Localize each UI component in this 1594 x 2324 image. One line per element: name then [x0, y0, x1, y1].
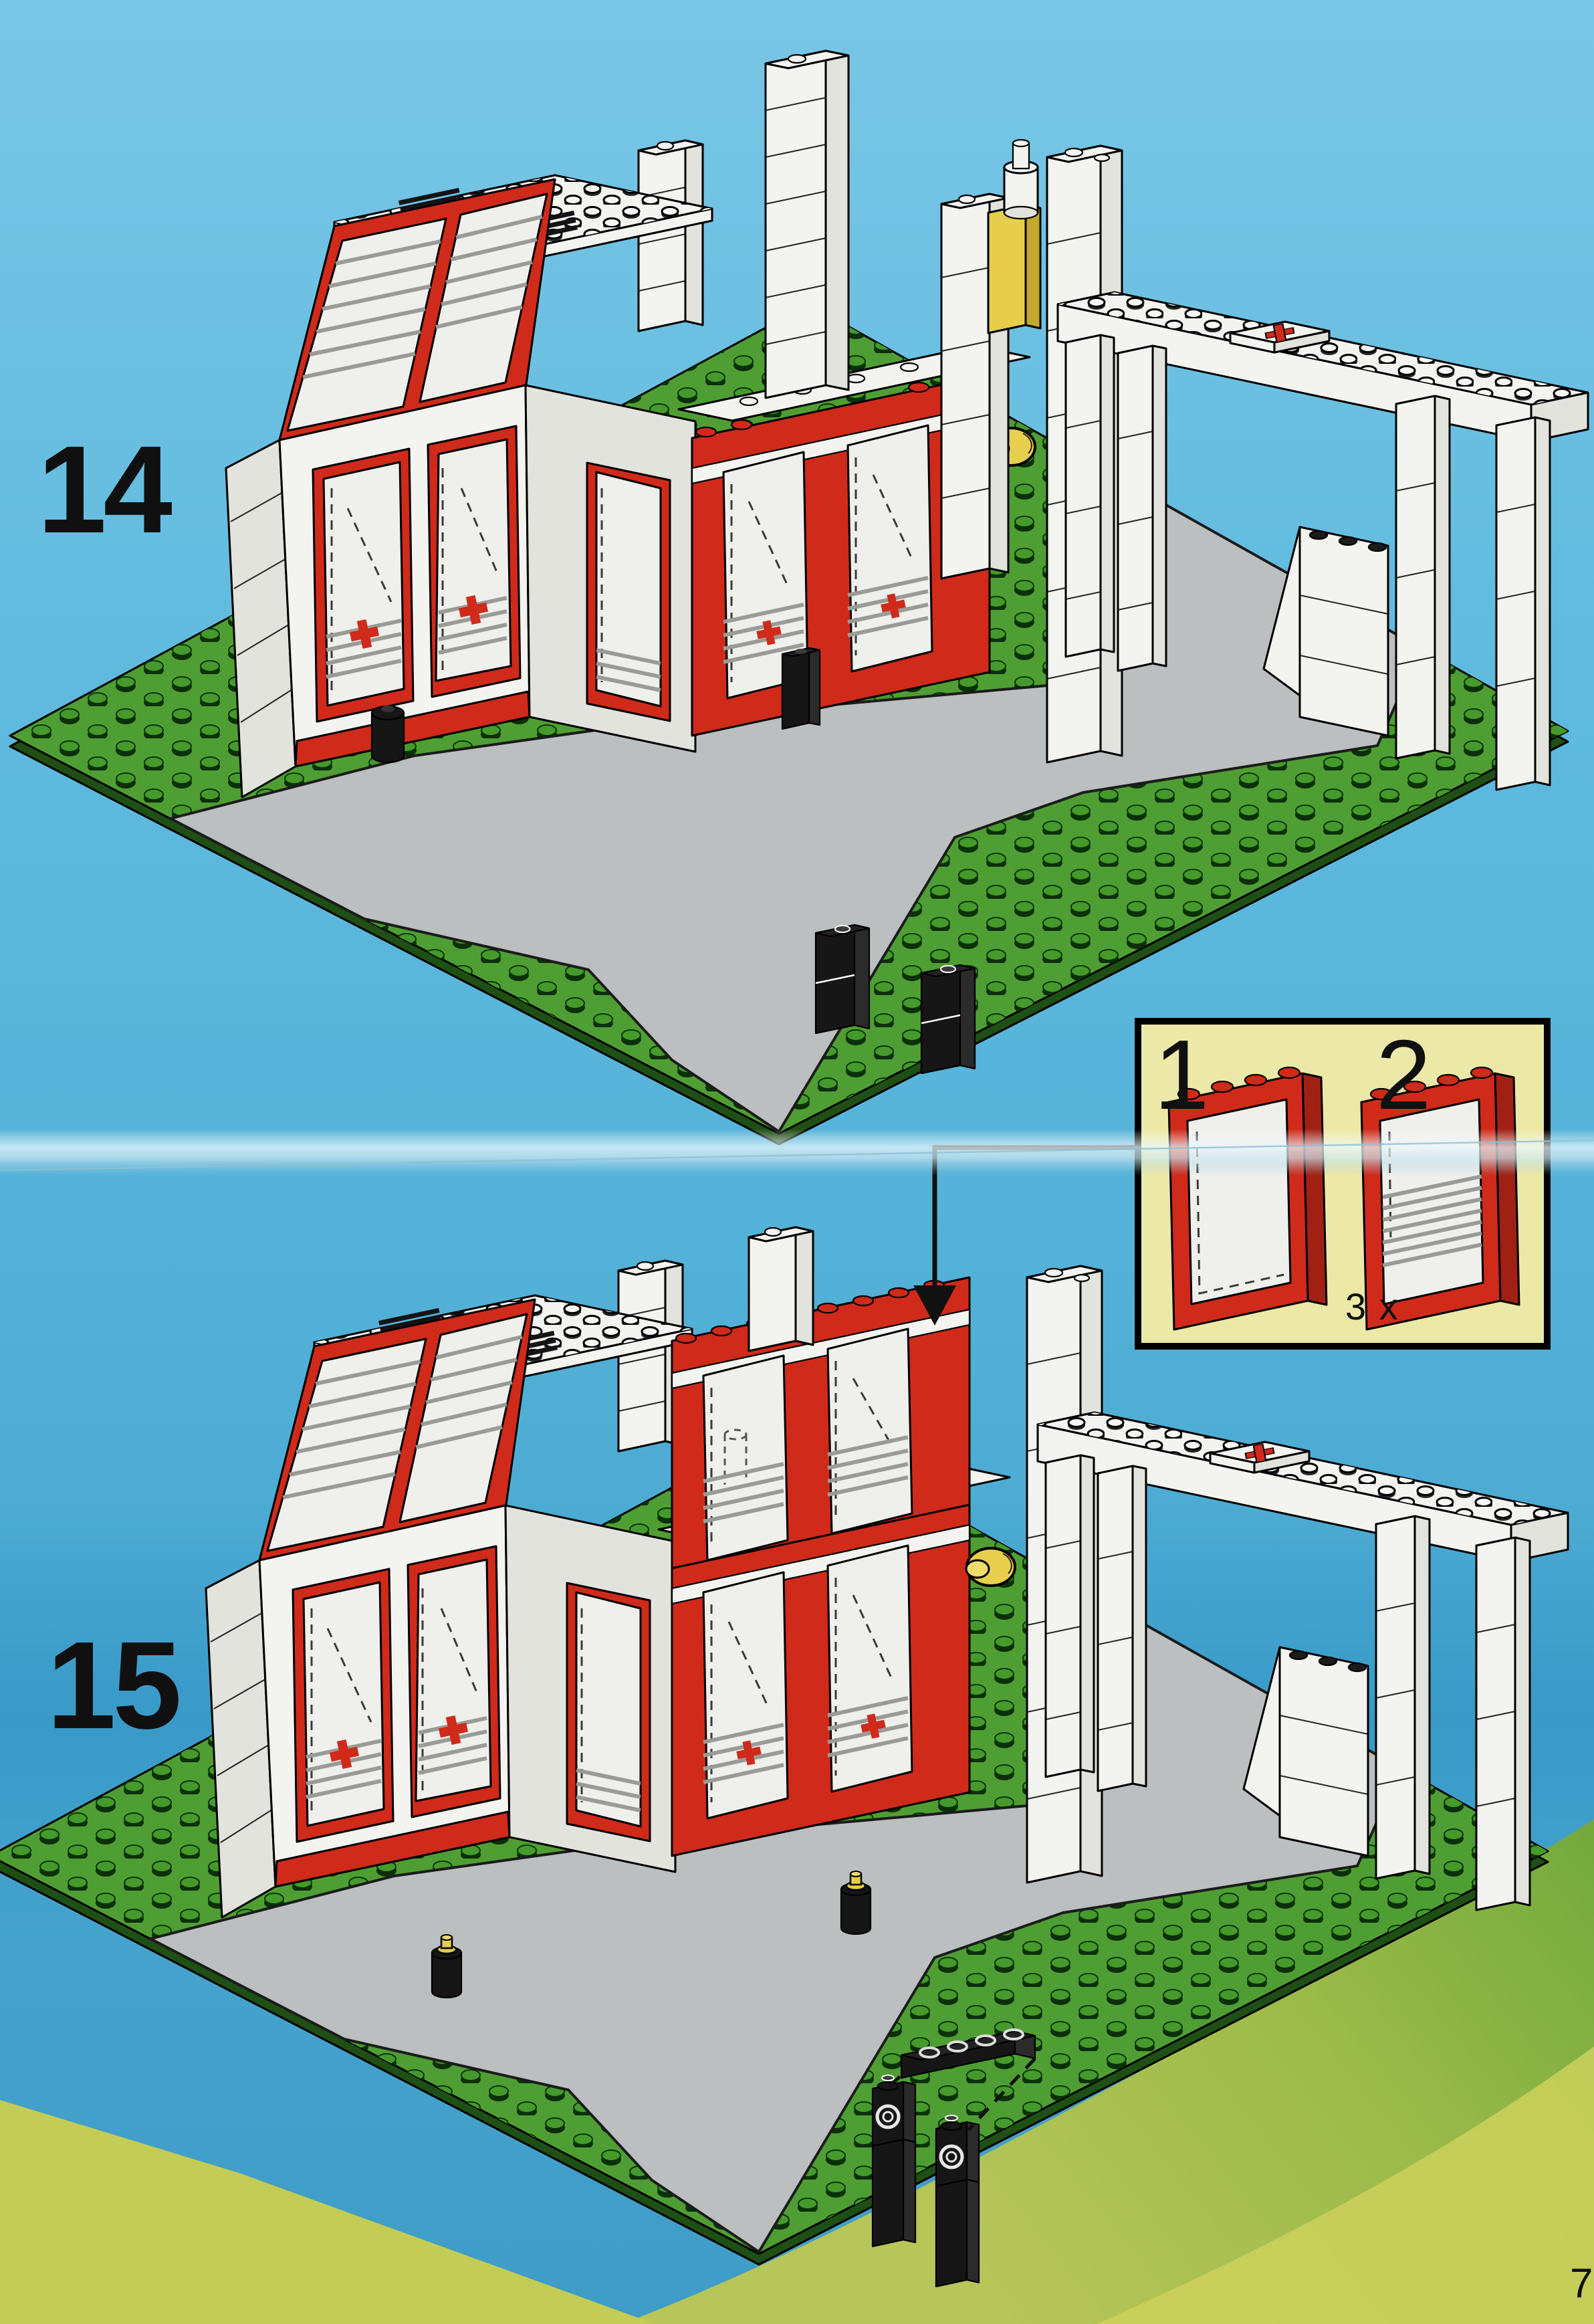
page-number: 7	[1570, 2263, 1593, 2305]
window	[703, 1356, 788, 1560]
black-round-brick	[372, 706, 404, 762]
step-14-number: 14	[37, 428, 169, 552]
fold-crease	[0, 1129, 1594, 1176]
black-brick	[921, 965, 975, 1073]
upper-chimney	[749, 1227, 813, 1351]
callout-part-1-number: 1	[1154, 1026, 1209, 1125]
step-15-number: 15	[47, 1624, 179, 1748]
window	[828, 1329, 912, 1534]
black-brick	[816, 925, 869, 1033]
gate-column	[936, 2115, 979, 2287]
page-illustration	[0, 0, 1594, 2324]
callout-quantity: 3 x	[1345, 1288, 1399, 1326]
instruction-page: 14 15 1 2 3 x 7	[0, 0, 1594, 2324]
black-post	[782, 648, 820, 729]
callout-part-2-number: 2	[1376, 1026, 1431, 1125]
gate-column	[873, 2075, 915, 2246]
